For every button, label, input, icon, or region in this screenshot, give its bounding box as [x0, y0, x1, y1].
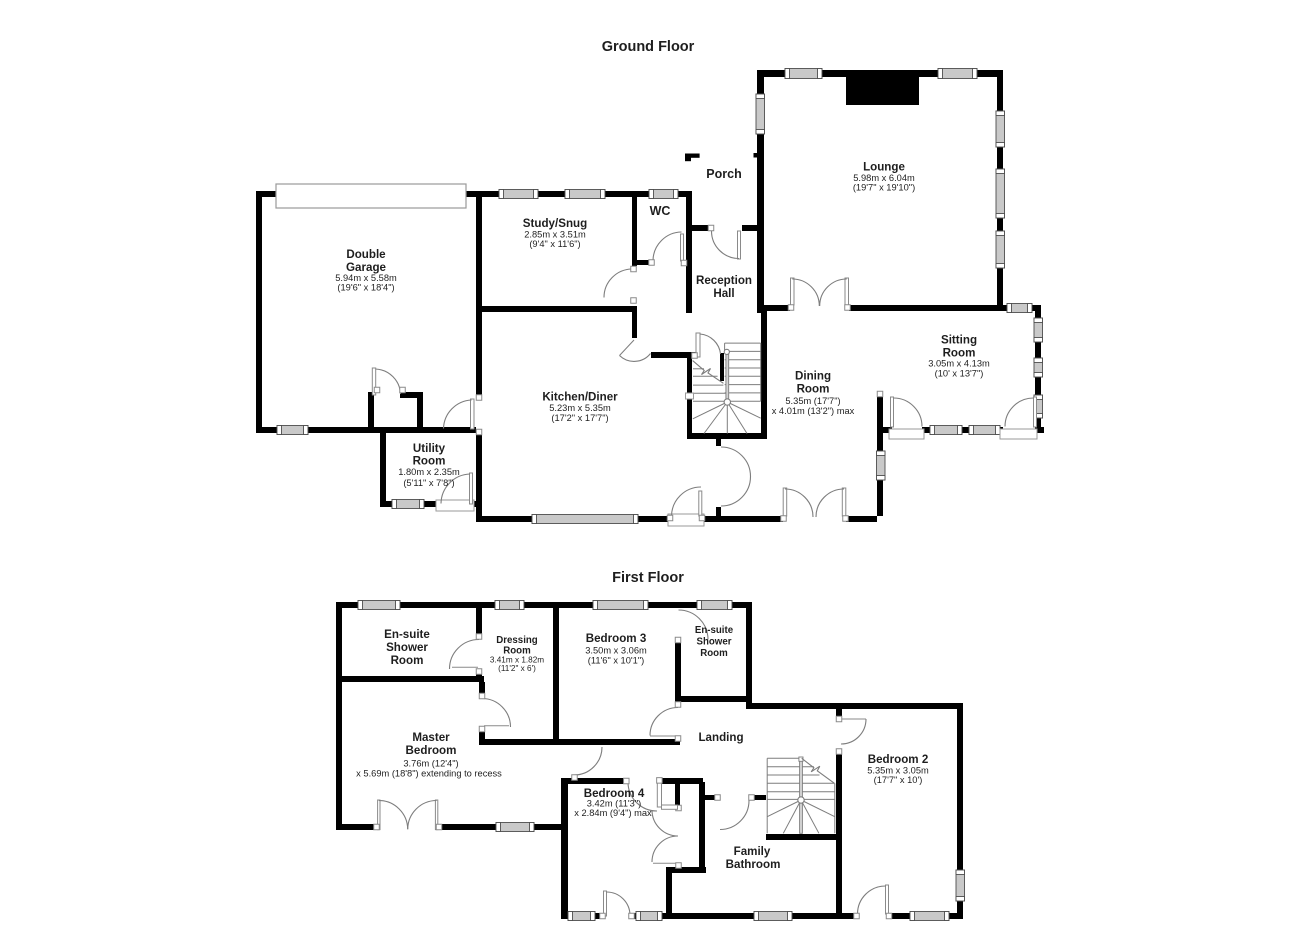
svg-text:Bathroom: Bathroom [726, 858, 781, 871]
svg-text:3.05m x 4.13m: 3.05m x 4.13m [928, 359, 990, 369]
svg-text:Bedroom 3: Bedroom 3 [586, 632, 647, 645]
svg-text:(17'7" x 10'): (17'7" x 10') [874, 775, 923, 785]
svg-text:Hall: Hall [713, 287, 734, 300]
svg-text:5.94m x 5.58m: 5.94m x 5.58m [335, 273, 397, 283]
svg-text:3.76m (12'4"): 3.76m (12'4") [403, 759, 458, 769]
svg-text:(9'4" x 11'6"): (9'4" x 11'6") [529, 239, 580, 249]
svg-text:5.35m x 3.05m: 5.35m x 3.05m [867, 766, 929, 776]
svg-text:Reception: Reception [696, 274, 752, 287]
svg-text:En-suite: En-suite [695, 625, 734, 636]
svg-text:Shower: Shower [697, 637, 732, 648]
svg-text:Landing: Landing [698, 731, 743, 744]
svg-text:1.80m x 2.35m: 1.80m x 2.35m [398, 467, 460, 477]
svg-text:(11'6" x 10'1"): (11'6" x 10'1") [588, 656, 645, 666]
svg-text:3.50m x 3.06m: 3.50m x 3.06m [585, 646, 647, 656]
svg-text:Porch: Porch [706, 167, 741, 181]
svg-text:(10' x 13'7"): (10' x 13'7") [935, 369, 984, 379]
svg-text:3.42m (11'3"): 3.42m (11'3") [587, 799, 642, 809]
svg-text:First Floor: First Floor [612, 570, 684, 586]
svg-text:Lounge: Lounge [863, 161, 905, 174]
svg-text:Utility: Utility [413, 442, 446, 455]
svg-text:5.23m x 5.35m: 5.23m x 5.35m [549, 403, 611, 413]
svg-text:Room: Room [391, 654, 424, 667]
svg-text:Master: Master [412, 731, 450, 744]
svg-text:Shower: Shower [386, 641, 428, 654]
svg-text:x 5.69m (18'8") extending to r: x 5.69m (18'8") extending to recess [356, 768, 502, 778]
svg-text:5.35m (17'7"): 5.35m (17'7") [785, 396, 840, 406]
svg-text:x 2.84m (9'4") max: x 2.84m (9'4") max [574, 808, 652, 818]
svg-text:Room: Room [413, 455, 446, 468]
svg-text:(19'6" x 18'4"): (19'6" x 18'4") [337, 283, 394, 293]
svg-text:Study/Snug: Study/Snug [523, 217, 587, 230]
svg-text:(19'7" x 19'10"): (19'7" x 19'10") [853, 183, 915, 193]
svg-text:2.85m x 3.51m: 2.85m x 3.51m [524, 230, 586, 240]
svg-text:(11'2" x 6'): (11'2" x 6') [498, 664, 536, 673]
svg-text:Kitchen/Diner: Kitchen/Diner [542, 391, 618, 404]
svg-text:(5'11" x 7'8"): (5'11" x 7'8") [403, 478, 454, 488]
svg-text:5.98m x 6.04m: 5.98m x 6.04m [853, 173, 915, 183]
svg-text:WC: WC [650, 204, 671, 218]
svg-text:x 4.01m (13'2") max: x 4.01m (13'2") max [772, 406, 855, 416]
svg-text:Room: Room [797, 383, 830, 396]
svg-text:Ground Floor: Ground Floor [602, 39, 695, 55]
svg-text:Bedroom: Bedroom [406, 744, 457, 757]
svg-text:Family: Family [734, 845, 771, 858]
svg-text:Room: Room [700, 648, 728, 659]
svg-text:Double: Double [346, 248, 386, 261]
svg-text:Sitting: Sitting [941, 334, 977, 347]
svg-text:En-suite: En-suite [384, 628, 430, 641]
svg-text:Dining: Dining [795, 370, 831, 383]
svg-text:(17'2" x 17'7"): (17'2" x 17'7") [551, 413, 608, 423]
svg-text:Bedroom 2: Bedroom 2 [868, 753, 929, 766]
svg-text:Dressing: Dressing [496, 635, 538, 646]
